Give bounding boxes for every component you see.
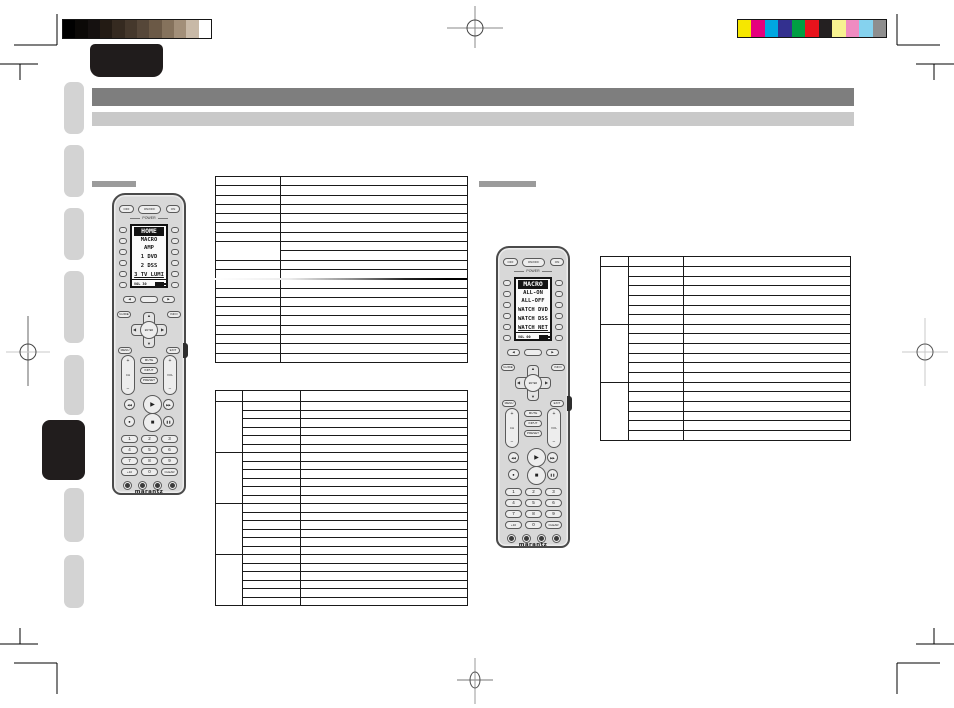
enter-button: ENTER	[524, 374, 542, 392]
numpad-button-1: 1	[505, 488, 522, 496]
page-center-button	[524, 349, 542, 356]
table-cell	[216, 325, 281, 334]
lcd-item: MACRO	[132, 236, 166, 245]
table-cell	[301, 436, 468, 445]
lcd-item: ALL-ON	[516, 289, 550, 298]
table-cell	[301, 572, 468, 581]
lcd-item: 3 TV LUMI	[132, 271, 166, 280]
lcd-title: HOME	[134, 227, 164, 236]
table-cell	[684, 295, 851, 305]
table-cell	[243, 453, 301, 462]
table-cell	[281, 316, 468, 325]
button-dot	[524, 536, 529, 541]
power-label: POWER	[114, 216, 184, 221]
numpad-button-4: 4	[121, 446, 138, 454]
table-cell	[281, 232, 468, 241]
table-cell	[216, 204, 281, 213]
calibration-swatch	[137, 20, 149, 38]
rocker-minus: −	[127, 386, 130, 392]
table-cell	[684, 353, 851, 363]
button-dot	[125, 483, 130, 488]
battery-icon	[539, 335, 548, 339]
power-button: ON/OFF	[138, 205, 161, 214]
numpad-button-2: 2	[141, 435, 158, 443]
center-function-button: MUTE	[140, 357, 158, 364]
lcd-status: VOL 00	[516, 332, 550, 340]
table-cell	[629, 344, 684, 354]
calibration-swatch	[859, 20, 872, 37]
page-left-button: ◀	[507, 349, 520, 356]
table-cell	[301, 563, 468, 572]
table-cell	[281, 242, 468, 251]
table-cell	[243, 487, 301, 496]
numpad-button-7: 7	[505, 510, 522, 518]
button-dot	[509, 536, 514, 541]
table-cell	[301, 538, 468, 547]
button-dot	[140, 483, 145, 488]
volume-rocker: +VOL−	[547, 408, 561, 448]
rocker-label: CH	[510, 426, 514, 430]
table-cell	[243, 470, 301, 479]
lcd-side-button	[119, 282, 127, 288]
lcd-side-button	[503, 313, 511, 319]
table-cell	[301, 410, 468, 419]
table-cell	[281, 353, 468, 362]
manual-page: OFFON/OFFONPOWERHOMEMACROAMP1 DVD2 DSS3 …	[0, 0, 954, 708]
table-cell	[301, 444, 468, 453]
table-cell	[601, 267, 629, 325]
rocker-plus: +	[169, 358, 172, 364]
calibration-swatch	[873, 20, 886, 37]
registration-mark-left-center	[6, 316, 50, 386]
table-cell	[684, 373, 851, 383]
table-cell	[684, 411, 851, 421]
table-cell	[301, 555, 468, 564]
table-cell	[301, 521, 468, 530]
fade-divider-line	[215, 278, 467, 281]
numpad-button-9: 9	[161, 457, 178, 465]
sidebar-tab-2	[64, 145, 84, 197]
lcd-side-button	[119, 227, 127, 233]
table-cell	[216, 555, 243, 606]
button-dot	[155, 483, 160, 488]
lcd-side-button	[171, 282, 179, 288]
table-cell	[243, 427, 301, 436]
page-right-button: ▶	[546, 349, 559, 356]
battery-icon	[155, 282, 164, 286]
table-cell	[629, 286, 684, 296]
table-cell	[216, 242, 281, 261]
button-dot	[539, 536, 544, 541]
crop-mark-top-right	[884, 8, 954, 80]
lcd-item: WATCH NET	[516, 324, 550, 333]
table-cell	[629, 324, 684, 334]
numpad-button-3: 3	[161, 435, 178, 443]
lcd-side-button	[171, 249, 179, 255]
guide-button: GUIDE	[501, 364, 515, 371]
lcd-display: MACROALL-ONALL-OFFWATCH DVDWATCH DSSWATC…	[514, 277, 552, 341]
sidebar-tab-1	[64, 82, 84, 134]
table-cell	[601, 324, 629, 382]
table-cell	[684, 334, 851, 344]
table-cell	[281, 186, 468, 195]
table-cell	[684, 344, 851, 354]
table-cell	[243, 572, 301, 581]
color-calibration-bar	[737, 19, 887, 38]
table-cell	[629, 421, 684, 431]
center-function-button: PRESET	[524, 430, 542, 437]
registration-mark-top-center	[447, 6, 503, 48]
table-cell	[684, 401, 851, 411]
page-right-button: ▶	[162, 296, 175, 303]
table-cell	[216, 353, 281, 362]
calibration-swatch	[765, 20, 778, 37]
function-table-top	[215, 176, 468, 363]
lcd-item: 1 DVD	[132, 253, 166, 262]
table-cell	[281, 177, 468, 186]
table-cell	[629, 363, 684, 373]
stop-button: ■	[143, 413, 162, 432]
table-cell	[243, 444, 301, 453]
lcd-side-button	[555, 324, 563, 330]
table-cell	[243, 461, 301, 470]
dpad-up-icon: ▲	[147, 314, 151, 318]
table-cell	[301, 453, 468, 462]
rocker-minus: −	[553, 439, 556, 445]
lcd-side-button	[503, 335, 511, 341]
table-cell	[629, 353, 684, 363]
menu-button: MENU	[118, 347, 132, 354]
table-cell	[629, 315, 684, 325]
table-cell	[629, 334, 684, 344]
lcd-side-button	[503, 291, 511, 297]
table-cell	[301, 487, 468, 496]
numpad-button-6: 6	[161, 446, 178, 454]
crop-mark-bottom-left	[0, 628, 70, 700]
table-cell	[301, 512, 468, 521]
table-cell	[243, 402, 301, 411]
table-cell	[216, 195, 281, 204]
dpad-down-icon: ▼	[147, 342, 151, 346]
table-cell	[216, 186, 281, 195]
numpad-button-7: 7	[121, 457, 138, 465]
table-cell	[281, 344, 468, 353]
volume-rocker: +VOL−	[163, 355, 177, 395]
numpad-button-5: 5	[525, 499, 542, 507]
table-cell	[281, 251, 468, 260]
table-cell	[281, 279, 468, 288]
table-cell	[629, 430, 684, 440]
table-cell	[243, 529, 301, 538]
rocker-label: VOL	[551, 426, 557, 430]
lcd-side-button	[503, 324, 511, 330]
center-function-button: PRESET	[140, 377, 158, 384]
table-cell	[281, 297, 468, 306]
table-cell	[281, 260, 468, 269]
calibration-swatch	[738, 20, 751, 37]
calibration-swatch	[88, 20, 100, 38]
center-function-button: MUTE	[524, 410, 542, 417]
table-cell	[216, 260, 281, 269]
table-cell	[243, 495, 301, 504]
lcd-item: ALL-OFF	[516, 297, 550, 306]
lcd-side-button	[555, 280, 563, 286]
calibration-swatch	[846, 20, 859, 37]
sidebar-tab-4	[64, 271, 84, 343]
side-light-button	[183, 343, 188, 358]
calibration-swatch	[199, 20, 211, 38]
side-light-button	[567, 396, 572, 411]
table-cell	[601, 257, 629, 267]
channel-rocker: +CH−	[121, 355, 135, 395]
table-cell	[281, 325, 468, 334]
button-dot	[170, 483, 175, 488]
calibration-swatch	[832, 20, 845, 37]
lcd-side-button	[555, 302, 563, 308]
grayscale-calibration-bar	[62, 19, 212, 39]
calibration-swatch	[63, 20, 75, 38]
table-cell	[216, 288, 281, 297]
dpad-right-icon: ▶	[161, 328, 164, 332]
rocker-label: VOL	[167, 373, 173, 377]
power-button: ON/OFF	[522, 258, 545, 267]
table-cell	[216, 279, 281, 288]
table-cell	[684, 276, 851, 286]
table-cell	[243, 597, 301, 606]
lcd-side-button	[503, 302, 511, 308]
calibration-swatch	[819, 20, 832, 37]
table-cell	[216, 223, 281, 232]
table-cell	[243, 512, 301, 521]
crop-mark-bottom-right	[884, 628, 954, 700]
table-cell	[216, 335, 281, 344]
calibration-swatch	[112, 20, 124, 38]
table-cell	[684, 286, 851, 296]
brand-logo: marantz	[498, 542, 568, 548]
rocker-plus: +	[553, 411, 556, 417]
numpad-button-9: 9	[545, 510, 562, 518]
table-cell	[216, 402, 243, 453]
calibration-swatch	[174, 20, 186, 38]
table-cell	[629, 276, 684, 286]
lcd-side-button	[119, 249, 127, 255]
table-cell	[243, 580, 301, 589]
table-cell	[684, 382, 851, 392]
table-cell	[301, 402, 468, 411]
table-cell	[243, 419, 301, 428]
rocker-plus: +	[511, 411, 514, 417]
table-cell	[301, 478, 468, 487]
numpad-button-2: 2	[525, 488, 542, 496]
table-cell	[629, 257, 684, 267]
table-cell	[301, 461, 468, 470]
rocker-minus: −	[169, 386, 172, 392]
lcd-side-button	[555, 291, 563, 297]
table-cell	[684, 363, 851, 373]
lcd-side-button	[555, 335, 563, 341]
registration-mark-bottom-center	[457, 658, 493, 704]
numpad-button-+10: +10	[121, 468, 138, 476]
table-cell	[301, 495, 468, 504]
table-cell	[629, 392, 684, 402]
table-cell	[301, 504, 468, 513]
numpad-button-6: 6	[545, 499, 562, 507]
calibration-swatch	[186, 20, 198, 38]
center-function-button: INPUT	[524, 420, 542, 427]
table-cell	[243, 410, 301, 419]
calibration-swatch	[162, 20, 174, 38]
numpad-button-+10: +10	[505, 521, 522, 529]
lcd-display: HOMEMACROAMP1 DVD2 DSS3 TV LUMIVOL 30	[130, 224, 168, 288]
rewind-button: ◀◀	[508, 452, 519, 463]
pause-button: ❚❚	[547, 469, 558, 480]
table-cell	[684, 324, 851, 334]
lcd-title: MACRO	[518, 280, 548, 289]
calibration-swatch	[805, 20, 818, 37]
info-button: INFO	[551, 364, 565, 371]
rewind-button: ◀◀	[124, 399, 135, 410]
table-cell	[216, 307, 281, 316]
remote-illustration-left: OFFON/OFFONPOWERHOMEMACROAMP1 DVD2 DSS3 …	[112, 193, 186, 495]
table-cell	[281, 307, 468, 316]
sidebar-tab-7	[64, 488, 84, 542]
table-cell	[216, 453, 243, 504]
lcd-item: WATCH DSS	[516, 315, 550, 324]
lcd-side-button	[555, 313, 563, 319]
play-button: ▶	[143, 395, 162, 414]
numpad-button-0: 0	[141, 468, 158, 476]
enter-button: ENTER	[140, 321, 158, 339]
table-cell	[629, 411, 684, 421]
table-cell	[629, 295, 684, 305]
table-cell	[301, 427, 468, 436]
table-cell	[281, 204, 468, 213]
power-button: OFF	[119, 205, 134, 213]
numpad-button-5: 5	[141, 446, 158, 454]
table-cell	[301, 419, 468, 428]
table-cell	[281, 223, 468, 232]
table-cell	[301, 391, 468, 402]
table-cell	[216, 232, 281, 241]
lcd-status-text: VOL 30	[134, 282, 147, 286]
lcd-status-text: VOL 00	[518, 335, 531, 339]
table-cell	[216, 504, 243, 555]
table-cell	[629, 305, 684, 315]
calibration-swatch	[149, 20, 161, 38]
numpad-button-3: 3	[545, 488, 562, 496]
lcd-side-button	[171, 260, 179, 266]
dpad-left-icon: ◀	[517, 381, 520, 385]
table-cell	[243, 478, 301, 487]
table-cell	[281, 288, 468, 297]
rocker-label: CH	[126, 373, 130, 377]
lcd-side-button	[119, 238, 127, 244]
lcd-item: WATCH DVD	[516, 306, 550, 315]
page-header-tab	[90, 44, 163, 77]
table-cell	[601, 382, 629, 440]
record-button: ●	[124, 416, 135, 427]
channel-rocker: +CH−	[505, 408, 519, 448]
table-cell	[301, 546, 468, 555]
pause-button: ❚❚	[163, 416, 174, 427]
table-cell	[301, 597, 468, 606]
table-cell	[243, 546, 301, 555]
table-cell	[281, 214, 468, 223]
fast-forward-button: ▶▶	[163, 399, 174, 410]
fast-forward-button: ▶▶	[547, 452, 558, 463]
table-cell	[243, 391, 301, 402]
table-cell	[684, 392, 851, 402]
table-cell	[243, 563, 301, 572]
lcd-side-button	[171, 271, 179, 277]
table-cell	[281, 335, 468, 344]
calibration-swatch	[751, 20, 764, 37]
table-cell	[243, 538, 301, 547]
table-cell	[684, 257, 851, 267]
dpad-right-icon: ▶	[545, 381, 548, 385]
registration-mark-right-center	[902, 318, 948, 386]
table-cell	[629, 382, 684, 392]
table-cell	[684, 267, 851, 277]
table-cell	[281, 195, 468, 204]
table-cell	[629, 373, 684, 383]
lcd-side-button	[119, 260, 127, 266]
left-section-label-bar	[92, 181, 136, 187]
power-button: ON	[550, 258, 564, 266]
table-cell	[243, 589, 301, 598]
lcd-side-button	[119, 271, 127, 277]
lcd-status: VOL 30	[132, 279, 166, 287]
sidebar-tab-5	[64, 355, 84, 415]
table-cell	[684, 315, 851, 325]
dpad-up-icon: ▲	[531, 367, 535, 371]
table-cell	[301, 529, 468, 538]
table-cell	[301, 470, 468, 479]
calibration-swatch	[792, 20, 805, 37]
crop-mark-top-left	[0, 8, 70, 80]
exit-button: EXIT	[550, 400, 564, 407]
button-dot	[554, 536, 559, 541]
exit-button: EXIT	[166, 347, 180, 354]
menu-button: MENU	[502, 400, 516, 407]
table-cell	[301, 580, 468, 589]
sidebar-tab-3	[64, 208, 84, 260]
lcd-item: 2 DSS	[132, 262, 166, 271]
lcd-side-button	[503, 280, 511, 286]
table-cell	[216, 316, 281, 325]
numpad-button-8: 8	[525, 510, 542, 518]
numpad-button-CLEAR: CLEAR	[161, 468, 178, 476]
calibration-swatch	[75, 20, 87, 38]
right-section-label-bar	[479, 181, 536, 187]
numpad-button-4: 4	[505, 499, 522, 507]
sidebar-tab-active	[42, 420, 85, 480]
numpad-button-CLEAR: CLEAR	[545, 521, 562, 529]
table-cell	[629, 267, 684, 277]
function-table-bottom-left	[215, 390, 468, 606]
table-cell	[243, 521, 301, 530]
stop-button: ■	[527, 466, 546, 485]
table-cell	[301, 589, 468, 598]
sidebar-tab-8	[64, 555, 84, 608]
play-button: ▶	[527, 448, 546, 467]
table-cell	[216, 177, 281, 186]
table-cell	[629, 401, 684, 411]
lcd-side-button	[171, 227, 179, 233]
numpad-button-8: 8	[141, 457, 158, 465]
numpad-button-0: 0	[525, 521, 542, 529]
brand-logo: marantz	[114, 489, 184, 495]
